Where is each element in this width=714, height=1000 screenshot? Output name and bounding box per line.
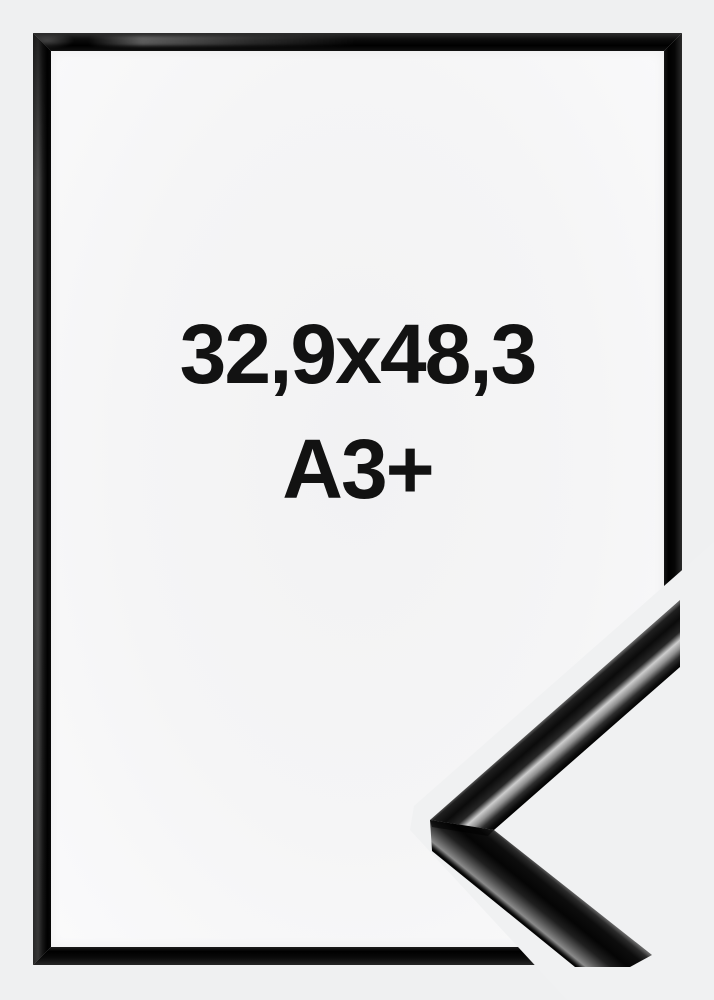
gloss-highlight [88, 36, 358, 46]
frame-edge-top [33, 33, 682, 51]
product-photo: 32,9x48,3 A3+ [0, 0, 714, 1000]
size-label: 32,9x48,3 A3+ [51, 297, 664, 527]
size-label-format: A3+ [51, 412, 664, 527]
size-label-dimensions: 32,9x48,3 [51, 297, 664, 412]
frame-edge-left [33, 33, 51, 965]
